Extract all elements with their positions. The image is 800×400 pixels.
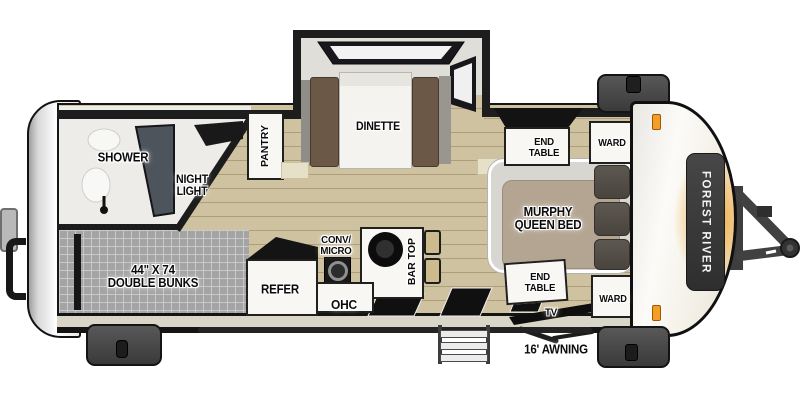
dinette-side-window-glass <box>454 63 472 104</box>
refrigerator-top <box>246 237 318 261</box>
shower-glass-door <box>136 125 174 216</box>
entry-door-glass <box>440 288 492 316</box>
dinette-seat-right <box>412 77 439 167</box>
floor-mat-left <box>281 162 309 179</box>
ohc-label: OHC <box>331 298 357 312</box>
dinette-seat-left <box>310 77 339 167</box>
pantry-label-box: PANTRY <box>249 115 281 177</box>
toilet <box>82 168 110 202</box>
floorplan: FOREST RIVER SHOWER NIGHT LIGHT PANTRY D… <box>0 0 800 400</box>
bathroom-bunk-divider-wall <box>57 224 179 230</box>
tv-label: TV <box>545 307 557 318</box>
brand-badge: FOREST RIVER <box>686 153 725 291</box>
brand-badge-text: FOREST RIVER <box>700 171 712 274</box>
convection-microwave <box>324 257 351 285</box>
compartment-right-latch <box>625 344 638 361</box>
shower-faucet <box>100 206 108 214</box>
bed-pillow-3 <box>594 239 630 270</box>
compartment-left-latch <box>116 340 128 358</box>
propane-cover-latch <box>626 76 641 93</box>
dinette-table-edge <box>340 73 411 86</box>
bar-top-label: BAR TOP <box>406 238 418 285</box>
step-rung-2 <box>440 342 488 350</box>
bar-top-label-box: BAR TOP <box>398 234 426 290</box>
pantry-label: PANTRY <box>259 125 271 167</box>
bar-stool-2 <box>424 258 441 284</box>
bathroom-sink <box>88 129 120 151</box>
night-light-label: NIGHT LIGHT <box>176 174 208 198</box>
entry-steps <box>438 325 490 364</box>
ward-bottom-label: WARD <box>599 295 626 306</box>
marker-light-bottom <box>652 305 661 321</box>
refer-label: REFER <box>261 283 299 296</box>
awning-rail <box>198 327 592 333</box>
dinette-panel-left <box>301 80 310 166</box>
bar-stool-1 <box>424 230 441 255</box>
dinette-top-window-glass <box>330 46 452 59</box>
dinette-label: DINETTE <box>356 121 400 133</box>
kitchen-sink-basin <box>376 240 394 258</box>
murphy-bed-label: MURPHY QUEEN BED <box>515 206 582 232</box>
bedroom-window <box>494 108 583 128</box>
microwave-dial <box>328 261 348 281</box>
shower-label: SHOWER <box>98 151 149 164</box>
step-rung-1 <box>440 330 488 338</box>
end-table-bottom-label: END TABLE <box>525 272 556 294</box>
bed-pillow-2 <box>594 202 630 236</box>
marker-light-top <box>652 114 661 130</box>
step-rung-3 <box>440 354 488 362</box>
awning-label: 16' AWNING <box>524 343 588 356</box>
bed-pillow-1 <box>594 165 630 199</box>
hitch-assembly <box>729 186 799 270</box>
end-table-top-label: END TABLE <box>529 137 560 159</box>
double-bunks-label: 44" X 74 DOUBLE BUNKS <box>108 264 198 290</box>
ward-top-label: WARD <box>598 139 625 150</box>
dinette-panel-right <box>439 76 451 164</box>
conv-micro-label: CONV/ MICRO <box>320 235 351 257</box>
